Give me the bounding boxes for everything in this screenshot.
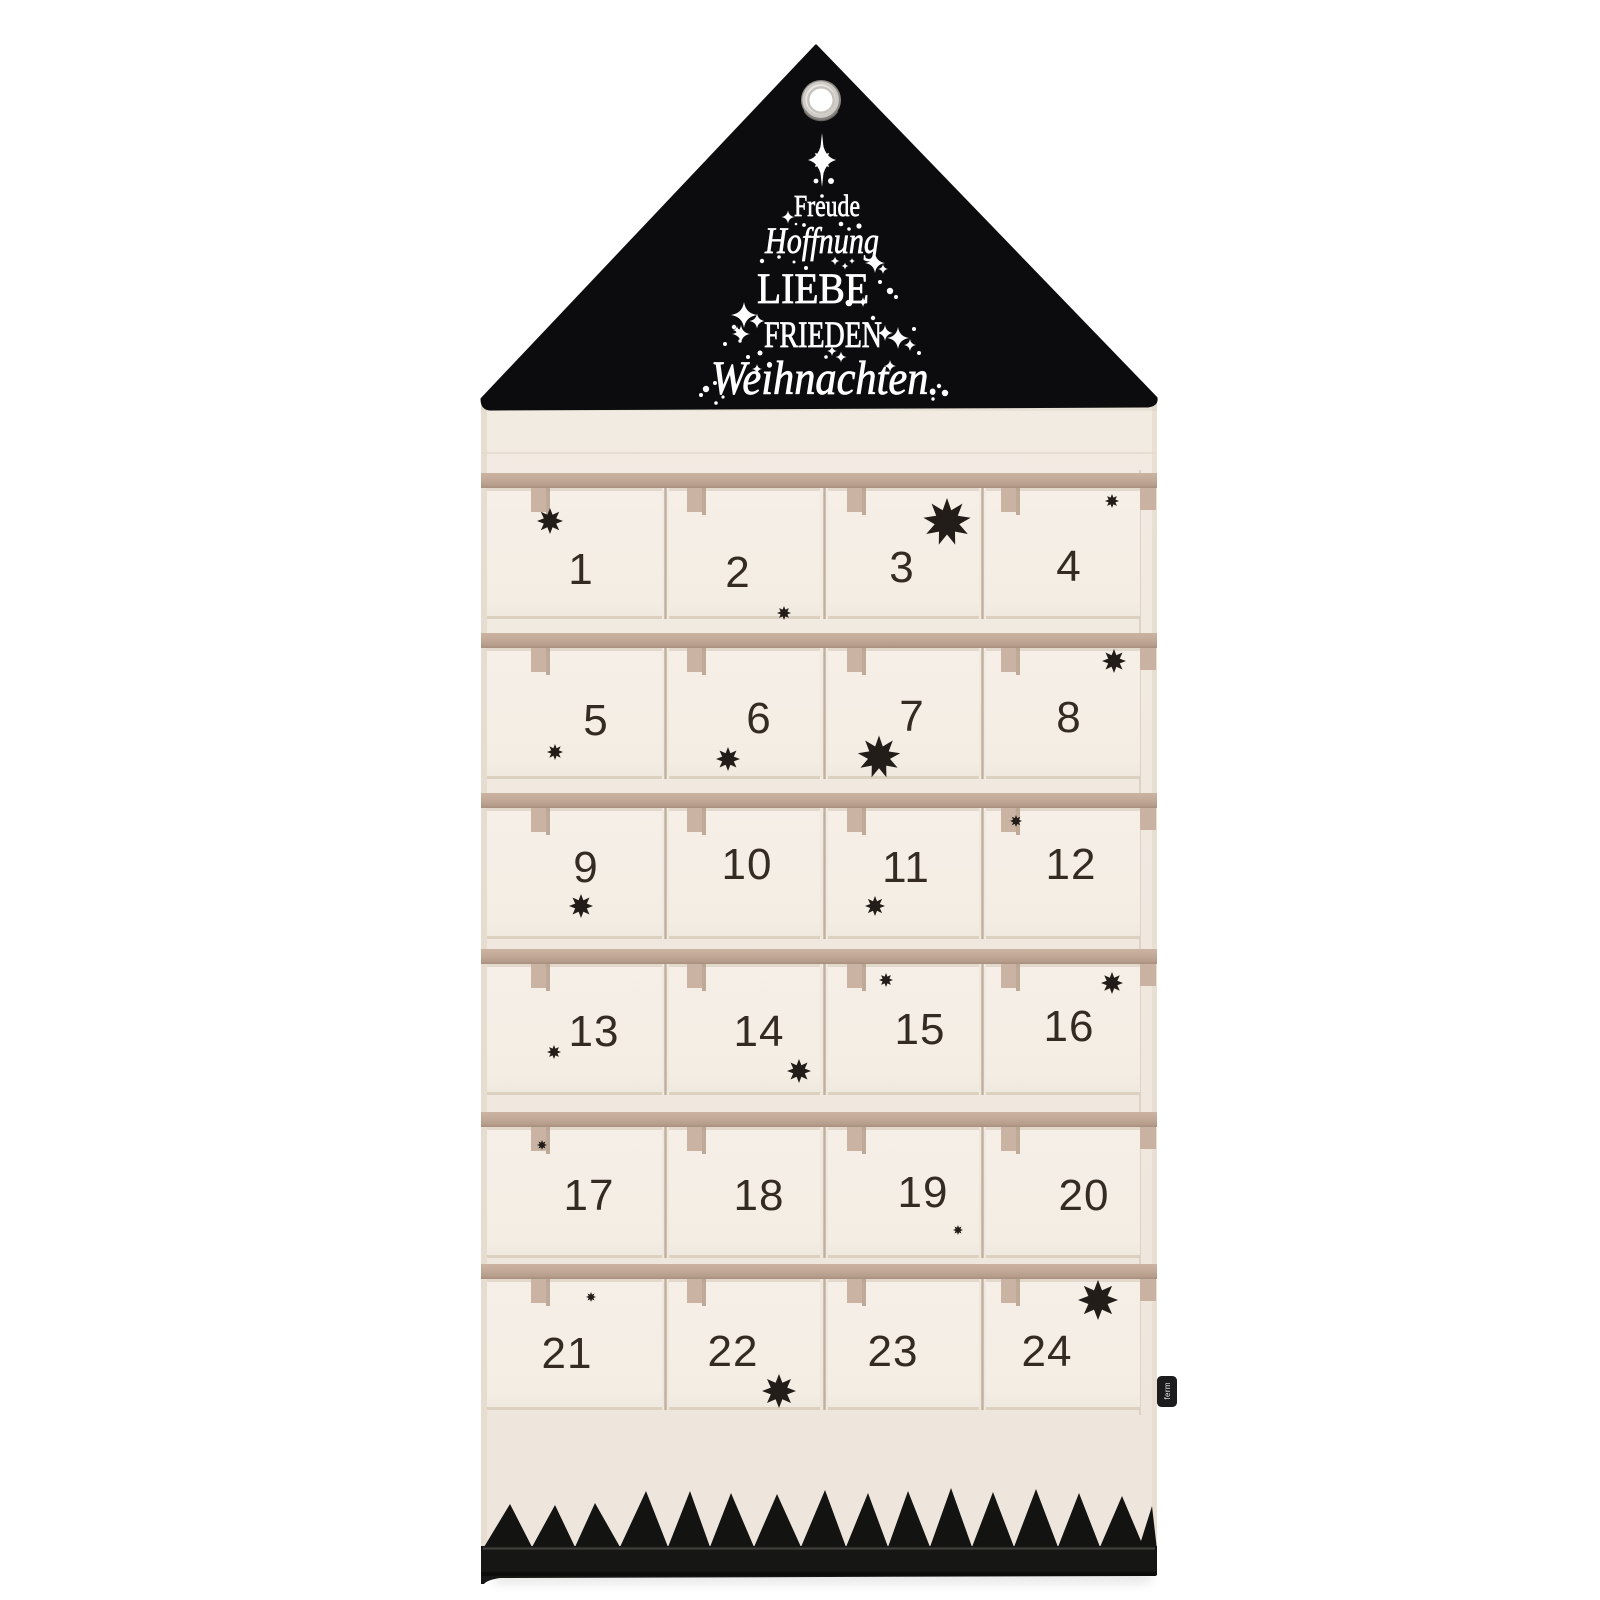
svg-text:15: 15 xyxy=(895,1005,946,1054)
svg-text:FRIEDEN: FRIEDEN xyxy=(764,315,882,356)
svg-text:18: 18 xyxy=(734,1171,785,1220)
svg-text:2: 2 xyxy=(725,548,750,597)
svg-text:4: 4 xyxy=(1056,542,1081,591)
svg-text:8: 8 xyxy=(1056,693,1081,742)
svg-text:13: 13 xyxy=(569,1007,620,1056)
svg-text:1: 1 xyxy=(568,545,593,594)
svg-text:19: 19 xyxy=(898,1168,949,1217)
svg-text:12: 12 xyxy=(1046,840,1097,889)
svg-text:Hoffnung: Hoffnung xyxy=(764,221,879,262)
svg-text:22: 22 xyxy=(708,1327,759,1376)
svg-text:24: 24 xyxy=(1022,1327,1073,1376)
svg-text:10: 10 xyxy=(722,840,773,889)
svg-text:21: 21 xyxy=(542,1329,593,1378)
svg-text:17: 17 xyxy=(564,1171,615,1220)
svg-text:LIEBE: LIEBE xyxy=(757,266,869,313)
svg-text:20: 20 xyxy=(1059,1171,1110,1220)
svg-text:3: 3 xyxy=(889,543,914,592)
svg-text:6: 6 xyxy=(746,694,771,743)
svg-text:Freude: Freude xyxy=(794,188,860,223)
svg-text:5: 5 xyxy=(583,696,608,745)
svg-text:11: 11 xyxy=(882,843,930,892)
svg-text:16: 16 xyxy=(1044,1002,1095,1051)
svg-text:7: 7 xyxy=(899,692,924,741)
svg-text:23: 23 xyxy=(868,1327,919,1376)
svg-text:9: 9 xyxy=(573,843,598,892)
svg-text:14: 14 xyxy=(734,1007,785,1056)
svg-text:Weihnachten.: Weihnachten. xyxy=(711,352,939,405)
svg-text:ferm: ferm xyxy=(1163,1382,1172,1399)
